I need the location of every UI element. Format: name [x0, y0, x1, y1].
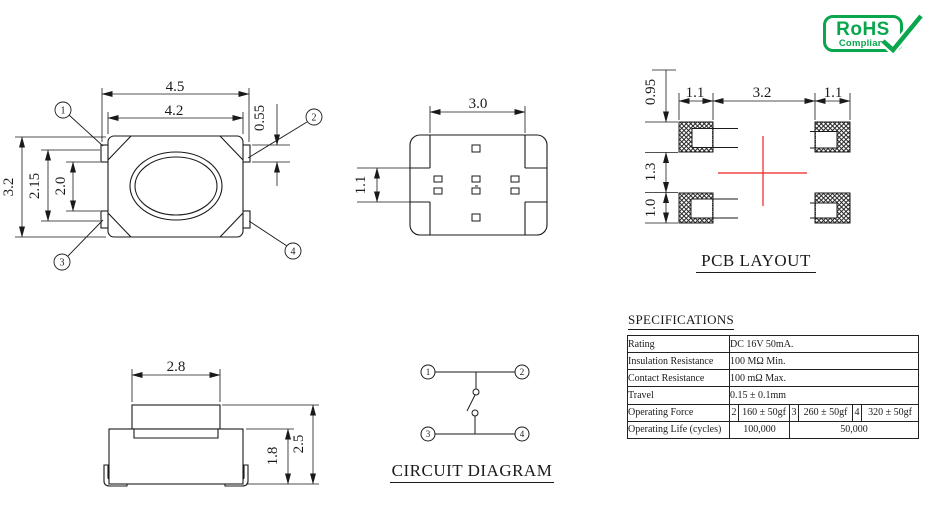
- dim-pad-width-left: 1.1: [686, 85, 705, 101]
- dim-overall-height: 3.2: [1, 178, 17, 197]
- dim-overall-width: 4.5: [166, 79, 185, 95]
- bottom-terminal-marks: [434, 145, 519, 221]
- spec-life-value: 100,000: [730, 421, 790, 438]
- spec-label: Travel: [628, 387, 730, 404]
- terminal-2-label: 2: [520, 367, 525, 377]
- spec-force-pos: 3: [790, 404, 799, 421]
- pcb-layout-title: PCB LAYOUT: [696, 251, 816, 273]
- spec-label: Operating Life (cycles): [628, 421, 730, 438]
- dim-side-pitch: 1.1: [353, 176, 369, 195]
- spec-label: Insulation Resistance: [628, 353, 730, 370]
- specifications-section: SPECIFICATIONS Rating DC 16V 50mA. Insul…: [627, 311, 919, 439]
- spec-value: 0.15 ± 0.1mm: [730, 387, 919, 404]
- dim-pad-gap: 3.2: [753, 85, 772, 101]
- circuit-diagram: 1 2 3 4: [421, 365, 529, 441]
- specifications-title: SPECIFICATIONS: [628, 312, 734, 330]
- specifications-table: Rating DC 16V 50mA. Insulation Resistanc…: [627, 335, 919, 439]
- pin-callout-2: 2: [312, 113, 317, 124]
- terminal-3-label: 3: [426, 429, 431, 439]
- dim-inner-height-1: 2.15: [27, 173, 43, 199]
- dim-body-height: 1.8: [265, 447, 281, 466]
- spec-force-pos: 4: [853, 404, 862, 421]
- dim-bottom-width: 3.0: [469, 96, 488, 112]
- spec-force-value: 320 ± 50gf: [862, 404, 919, 421]
- dim-pad-height-bottom: 1.0: [643, 199, 659, 218]
- dim-total-height: 2.5: [291, 435, 307, 454]
- table-row: Operating Force 2 160 ± 50gf 3 260 ± 50g…: [628, 404, 919, 421]
- rohs-badge: RoHS Compliant: [823, 12, 923, 62]
- switch-body-outline: [108, 136, 243, 237]
- switch-arm: [467, 395, 475, 411]
- dim-pad-height-top: 0.95: [643, 79, 659, 105]
- front-button: [132, 405, 220, 429]
- datasheet-page: 4.5 4.2 0.55 3.2 2.15 2.0 1 2 3 4: [0, 0, 926, 513]
- spec-value: DC 16V 50mA.: [730, 336, 919, 353]
- table-row: Travel 0.15 ± 0.1mm: [628, 387, 919, 404]
- dim-inner-height-2: 2.0: [53, 177, 69, 196]
- terminal-1-label: 1: [426, 367, 431, 377]
- spec-label: Contact Resistance: [628, 370, 730, 387]
- table-row: Insulation Resistance 100 MΩ Min.: [628, 353, 919, 370]
- dim-pad-width-right: 1.1: [824, 85, 843, 101]
- table-row: Rating DC 16V 50mA.: [628, 336, 919, 353]
- spec-value: 100 mΩ Max.: [730, 370, 919, 387]
- spec-force-value: 260 ± 50gf: [799, 404, 853, 421]
- table-row: Operating Life (cycles) 100,000 50,000: [628, 421, 919, 438]
- fixed-contact: [473, 389, 479, 395]
- spec-force-value: 160 ± 50gf: [739, 404, 790, 421]
- bottom-view: [410, 135, 547, 235]
- pcb-layout: 1.1 3.2 1.1 0.95 1.3 1.0: [643, 70, 850, 223]
- spec-label: Operating Force: [628, 404, 730, 421]
- moving-contact: [472, 410, 478, 416]
- dim-body-width: 4.2: [165, 103, 184, 119]
- pin-callout-4: 4: [291, 247, 296, 258]
- bottom-view-dimensions: 3.0 1.1: [353, 96, 525, 202]
- terminal-4-label: 4: [520, 429, 525, 439]
- circuit-diagram-title: CIRCUIT DIAGRAM: [390, 461, 554, 483]
- table-row: Contact Resistance 100 mΩ Max.: [628, 370, 919, 387]
- spec-label: Rating: [628, 336, 730, 353]
- spec-value: 100 MΩ Min.: [730, 353, 919, 370]
- pin-callout-3: 3: [60, 258, 65, 269]
- rohs-checkmark-icon: [878, 13, 926, 61]
- corner-notches: [410, 135, 547, 235]
- front-body: [109, 429, 243, 484]
- front-view: [104, 405, 248, 486]
- dim-row-gap: 1.3: [643, 163, 659, 182]
- spec-force-pos: 2: [730, 404, 739, 421]
- dim-pin-length: 0.55: [252, 105, 268, 131]
- pin-callout-1: 1: [61, 106, 66, 117]
- center-cross-mark: [718, 136, 807, 206]
- spec-life-value: 50,000: [790, 421, 919, 438]
- top-view: [101, 136, 250, 237]
- dim-button-width: 2.8: [167, 359, 186, 375]
